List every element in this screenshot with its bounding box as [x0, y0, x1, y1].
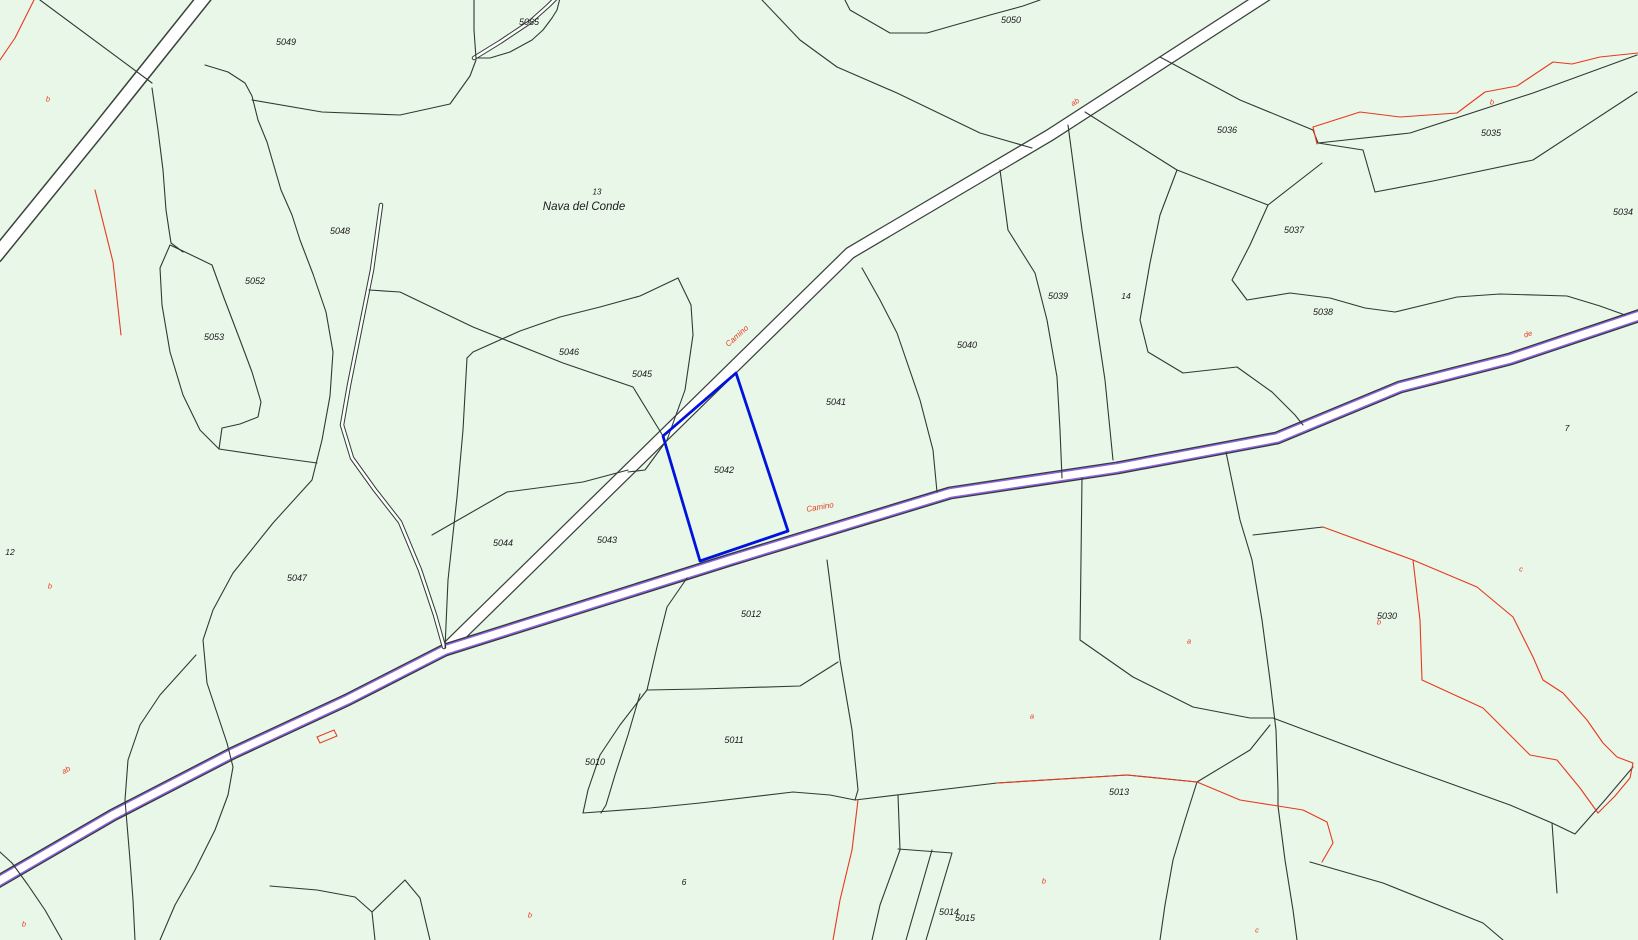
parcel-boundary-16 [862, 268, 937, 492]
parcel-boundary-45 [372, 880, 430, 940]
red-boundary-1 [95, 190, 121, 335]
parcel-boundary-7 [252, 60, 476, 115]
parcel-boundary-18 [1068, 125, 1113, 460]
red-boundary-6 [997, 775, 1197, 783]
building-outline [317, 730, 337, 743]
parcel-boundary-8 [762, 0, 1032, 148]
red-boundary-8 [833, 800, 858, 940]
parcel-boundary-37 [601, 694, 640, 813]
parcel-boundary-35 [647, 662, 838, 690]
cadastral-map-viewport[interactable]: 5065504950505036503550345037503850485052… [0, 0, 1638, 940]
red-boundary-2 [1313, 53, 1638, 127]
parcel-boundary-5 [160, 245, 261, 449]
stream-sliver-fill [342, 205, 444, 647]
road-camino-purple-fill [0, 314, 1638, 884]
road-upper-left-fill [0, 0, 207, 256]
parcel-boundary-6 [219, 449, 317, 463]
parcel-boundary-36 [583, 690, 647, 813]
selected-parcel-5042[interactable] [663, 373, 788, 561]
parcel-boundary-42 [926, 853, 952, 940]
parcel-boundary-30 [1310, 862, 1503, 940]
cadastral-map-canvas [0, 0, 1638, 940]
parcel-boundary-1 [160, 65, 333, 940]
red-boundary-7 [1197, 782, 1333, 862]
parcel-boundary-22 [1318, 55, 1637, 143]
parcel-boundary-0 [40, 0, 152, 83]
parcel-boundary-4 [152, 88, 183, 252]
road-camino-purple-fill [0, 314, 1638, 884]
red-boundary-3 [1313, 127, 1317, 144]
parcel-boundary-41 [906, 850, 932, 940]
stream-sliver-edge [342, 205, 444, 647]
red-boundary-4 [1323, 527, 1633, 813]
parcel-boundary-20 [1160, 57, 1313, 130]
red-boundary-5 [1413, 560, 1598, 813]
parcel-boundary-19 [1140, 170, 1303, 425]
parcel-boundary-13 [445, 358, 467, 648]
parcel-boundary-44 [270, 886, 375, 940]
parcel-boundary-40 [898, 849, 952, 853]
road-camino-diagonal-edge [445, 0, 1268, 650]
parcel-boundary-34 [647, 578, 687, 690]
parcel-boundary-12 [369, 290, 663, 436]
parcel-boundary-28 [1080, 478, 1273, 718]
parcel-boundary-32 [855, 725, 1270, 800]
red-boundary-0 [0, 0, 34, 60]
parcel-boundary-29 [1273, 718, 1633, 834]
parcel-boundary-31 [1552, 823, 1557, 893]
parcel-boundary-23 [1318, 92, 1637, 192]
parcel-boundary-17 [1000, 170, 1062, 478]
parcel-boundary-9 [845, 0, 1040, 33]
road-camino-diagonal-fill [445, 0, 1268, 650]
parcel-boundary-26 [1226, 452, 1297, 940]
parcel-boundary-43 [1160, 782, 1197, 940]
parcel-boundary-38 [583, 792, 855, 813]
parcel-boundary-24 [1085, 112, 1322, 205]
parcel-boundary-27 [1253, 527, 1323, 535]
road-camino-purple-edge [0, 314, 1638, 884]
parcel-boundary-33 [827, 560, 858, 800]
parcel-boundary-25 [1232, 205, 1625, 315]
parcel-boundary-39 [872, 795, 900, 940]
parcel-boundary-11 [467, 278, 678, 358]
